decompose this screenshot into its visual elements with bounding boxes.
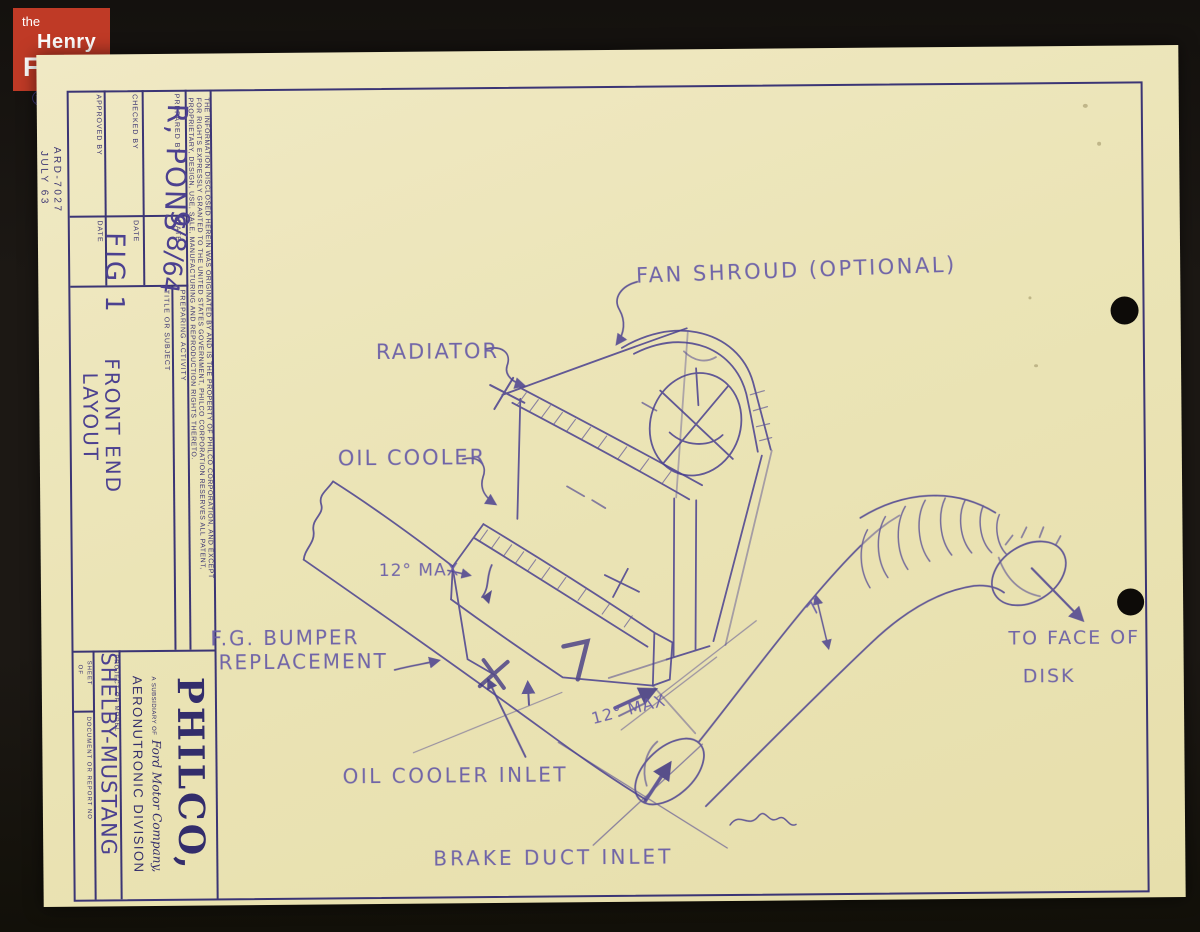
ford-motor-company-script: Ford Motor Company, [149, 740, 164, 873]
divider [172, 285, 177, 650]
duct-flange-ellipse [980, 528, 1078, 618]
brake-duct-inlet-label: BRAKE DUCT INLET [433, 844, 673, 870]
brake-duct-inlet-arrow [645, 766, 669, 802]
title-block: THE INFORMATION DISCLOSED HEREIN WAS ORI… [32, 89, 219, 900]
of-label: OF [77, 665, 83, 675]
document-or-report-label: DOCUMENT OR REPORT NO [85, 717, 92, 820]
paper-sheet: THE INFORMATION DISCLOSED HEREIN WAS ORI… [36, 45, 1185, 907]
sheet-label: SHEET [86, 661, 92, 686]
bumper-leader [395, 661, 439, 670]
title-value-line2: LAYOUT [78, 372, 103, 462]
approved-by-label: APPROVED BY [95, 94, 103, 155]
fan-shroud-sketch [622, 330, 774, 646]
bumper-label-line1: F.G. BUMPER [210, 625, 359, 650]
to-face-label-line2: DISK [1023, 665, 1076, 687]
title-value-line1: FRONT END [100, 358, 125, 494]
figure-number: FIG 1 [99, 232, 130, 315]
checked-by-label: CHECKED BY [131, 94, 138, 150]
oil-cooler-inlet-label: OIL COOLER INLET [343, 762, 569, 788]
doc-date: JULY 63 [38, 151, 49, 206]
fan-shroud-leader [616, 282, 638, 344]
divider [142, 90, 145, 285]
date-label: DATE [132, 220, 139, 242]
angle-max-right-label: 12° MAX [589, 691, 667, 728]
logo-henry: Henry [37, 32, 96, 52]
to-face-arrow [1032, 568, 1082, 620]
oil-cooler-sketch [450, 522, 673, 705]
preparing-activity-label: PREPARING ACTIVITY [178, 290, 186, 382]
philco-logotype: PHILCO, [169, 650, 213, 899]
doc-number: ARD-7027 [51, 147, 63, 214]
angle-max-left-label: 12° MAX [379, 560, 460, 581]
seven-inch-label: 7″ [803, 593, 829, 619]
bumper-label-line2: REPLACEMENT [219, 649, 388, 674]
project-or-model-label: PROJECT OR MODEL [113, 654, 120, 732]
front-end-layout-sketch: FAN SHROUD (OPTIONAL) RADIATOR OIL COOLE… [212, 81, 1149, 899]
scanned-drawing-page: the Henry Ford Ford [0, 0, 1200, 932]
divider [74, 711, 95, 713]
logo-the: the [22, 15, 40, 28]
radiator-label: RADIATOR [376, 339, 499, 364]
brake-duct-sketch [556, 494, 1084, 849]
philco-subsidiary-line: A SUBSIDIARY OF Ford Motor Company, [147, 650, 167, 899]
oil-cooler-label: OIL COOLER [338, 445, 487, 470]
duct-opening-ellipse [623, 726, 716, 817]
oil-cooler-inlet-leader [489, 681, 526, 757]
title-or-subject-label: TITLE OR SUBJECT [162, 290, 170, 371]
fan-shroud-label: FAN SHROUD (OPTIONAL) [636, 253, 957, 288]
subsidiary-label: A SUBSIDIARY OF [150, 676, 157, 735]
to-face-label-line1: TO FACE OF [1007, 626, 1140, 649]
radiator-sketch [490, 328, 710, 679]
aeronutronic-division-label: AERONUTRONIC DIVISION [130, 650, 147, 899]
